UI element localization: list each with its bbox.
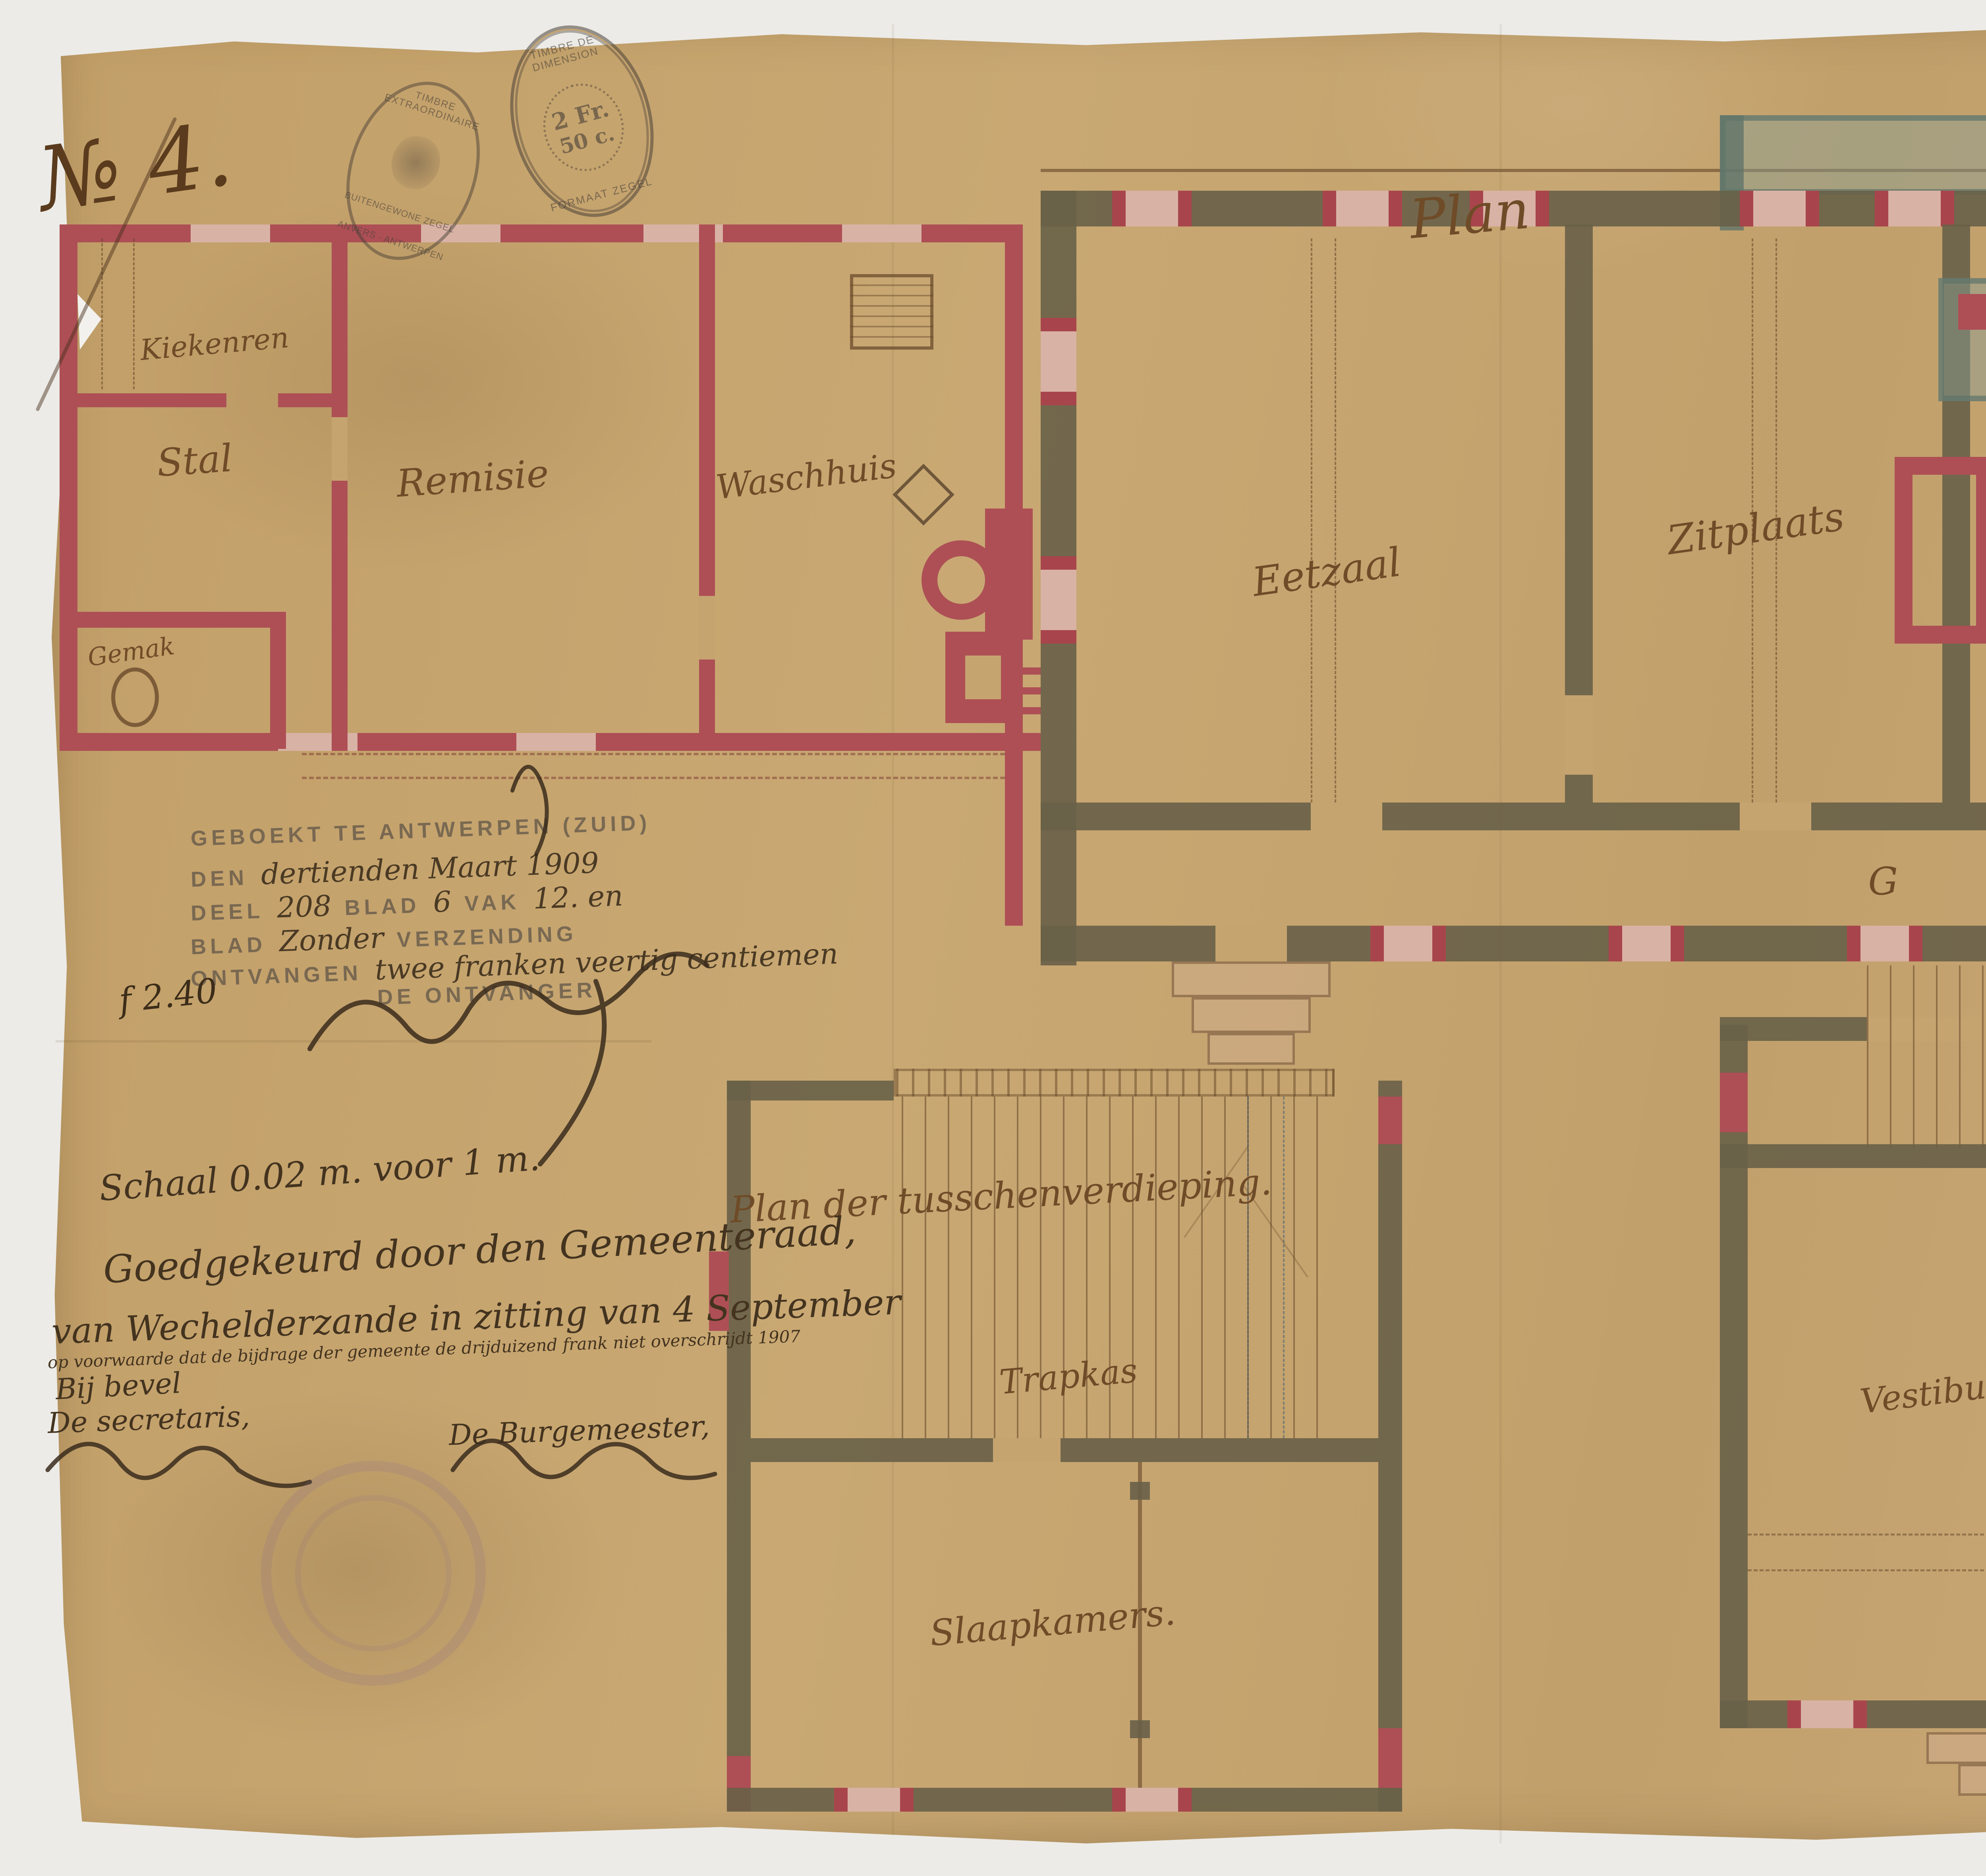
centerline-dashed [1311,238,1312,803]
window-opening [834,1788,914,1812]
passage-step [1009,707,1041,714]
projection-dashed-line [1748,1534,1986,1536]
passage-step [1009,687,1041,694]
privy-seat-symbol [111,667,159,727]
window-opening [1847,926,1922,961]
brick-wall-segment [278,393,348,407]
door-opening [332,417,348,481]
handwritten-value: 12. en [533,879,624,915]
window-opening [516,733,596,751]
brick-wall-segment [60,393,226,407]
brick-wall-segment [332,224,348,751]
brick-accent [1720,1073,1748,1132]
door-opening [993,1438,1061,1462]
hatched-gutter-band [894,1069,1335,1097]
window-opening [1875,191,1954,226]
handwritten-value: 6 [433,885,452,919]
pen-partition-dashed-line [101,238,103,389]
door-opening [1565,695,1593,775]
window-opening [1609,926,1684,961]
wall-segment [1041,803,1986,830]
door-opening [1740,803,1811,830]
wall-segment [1720,1144,1986,1168]
wall-segment [727,1788,1402,1812]
plan-title: Plan [1407,178,1532,251]
window-opening [842,224,922,242]
brick-wall-segment [1005,751,1023,926]
brick-wall-segment [60,612,286,628]
wall-segment [751,1438,1378,1462]
front-door-opening [1215,926,1287,961]
porch-step [1958,1764,1986,1796]
wall-segment [1378,1081,1402,1812]
porch-step [1207,1033,1295,1065]
paper-crease [56,1040,651,1042]
projection-dashed-line [1748,1569,1986,1571]
flue-accent [1958,294,1986,330]
stamp-text: VAK [464,890,520,916]
wall-segment [727,1081,894,1100]
centerline-dashed [1335,238,1336,803]
brick-accent [1378,1728,1402,1788]
door-hinge-mark [1130,1720,1150,1738]
terrace-outline [1720,115,1986,195]
porch-step [1172,961,1331,997]
window-opening [1112,1788,1192,1812]
room-label-stal: Stal [155,436,234,485]
stamp-text: BLAD [190,932,267,959]
stair-dashed-guide [1283,1097,1285,1438]
door-opening [699,596,715,660]
porch-step [1926,1732,1986,1764]
stove-opening [965,656,1001,699]
window-opening [1323,191,1402,226]
stamp-text: DEEL [190,899,264,925]
door-hinge-mark [1130,1482,1150,1500]
window-opening [1787,1700,1867,1728]
door-opening [1311,803,1382,830]
stamp-top-text: TIMBRE DE DIMENSION [500,25,628,82]
window-opening [1370,926,1446,961]
drain-grate-symbol [850,274,933,350]
window-opening [1041,556,1076,644]
handwritten-value: 208 [276,889,332,924]
handwritten-value: Zonder [278,921,384,958]
wall-segment [1041,926,1986,961]
brick-wall-segment [60,224,77,751]
stamp-text: BLAD [344,894,421,920]
window-opening [1740,191,1819,226]
window-opening [1041,318,1076,405]
wash-boiler-symbol [922,540,1001,620]
brick-wall-segment [270,612,286,749]
fireplace-symbol [1895,457,1986,644]
yard-dashed-line [302,777,1005,779]
coat-of-arms-blob [384,129,447,196]
yard-dashed-line [302,753,1005,755]
stair-treads [1867,965,1986,1148]
brick-accent [1378,1097,1402,1144]
brick-wall-segment [699,224,715,751]
pen-partition-dashed-line [133,238,135,389]
passage-step [1009,667,1041,675]
window-opening [191,224,270,242]
by-order-note: Bij bevel [55,1366,182,1406]
window-opening [1112,191,1192,226]
porch-step [1192,997,1311,1033]
secretary-label: De secretaris, [47,1399,251,1440]
stamp-text: DEN [190,866,248,892]
scanned-floor-plan-sheet: TIMBRE EXTRAORDINAIRE BUITENGEWONE ZEGEL… [0,0,1986,1876]
